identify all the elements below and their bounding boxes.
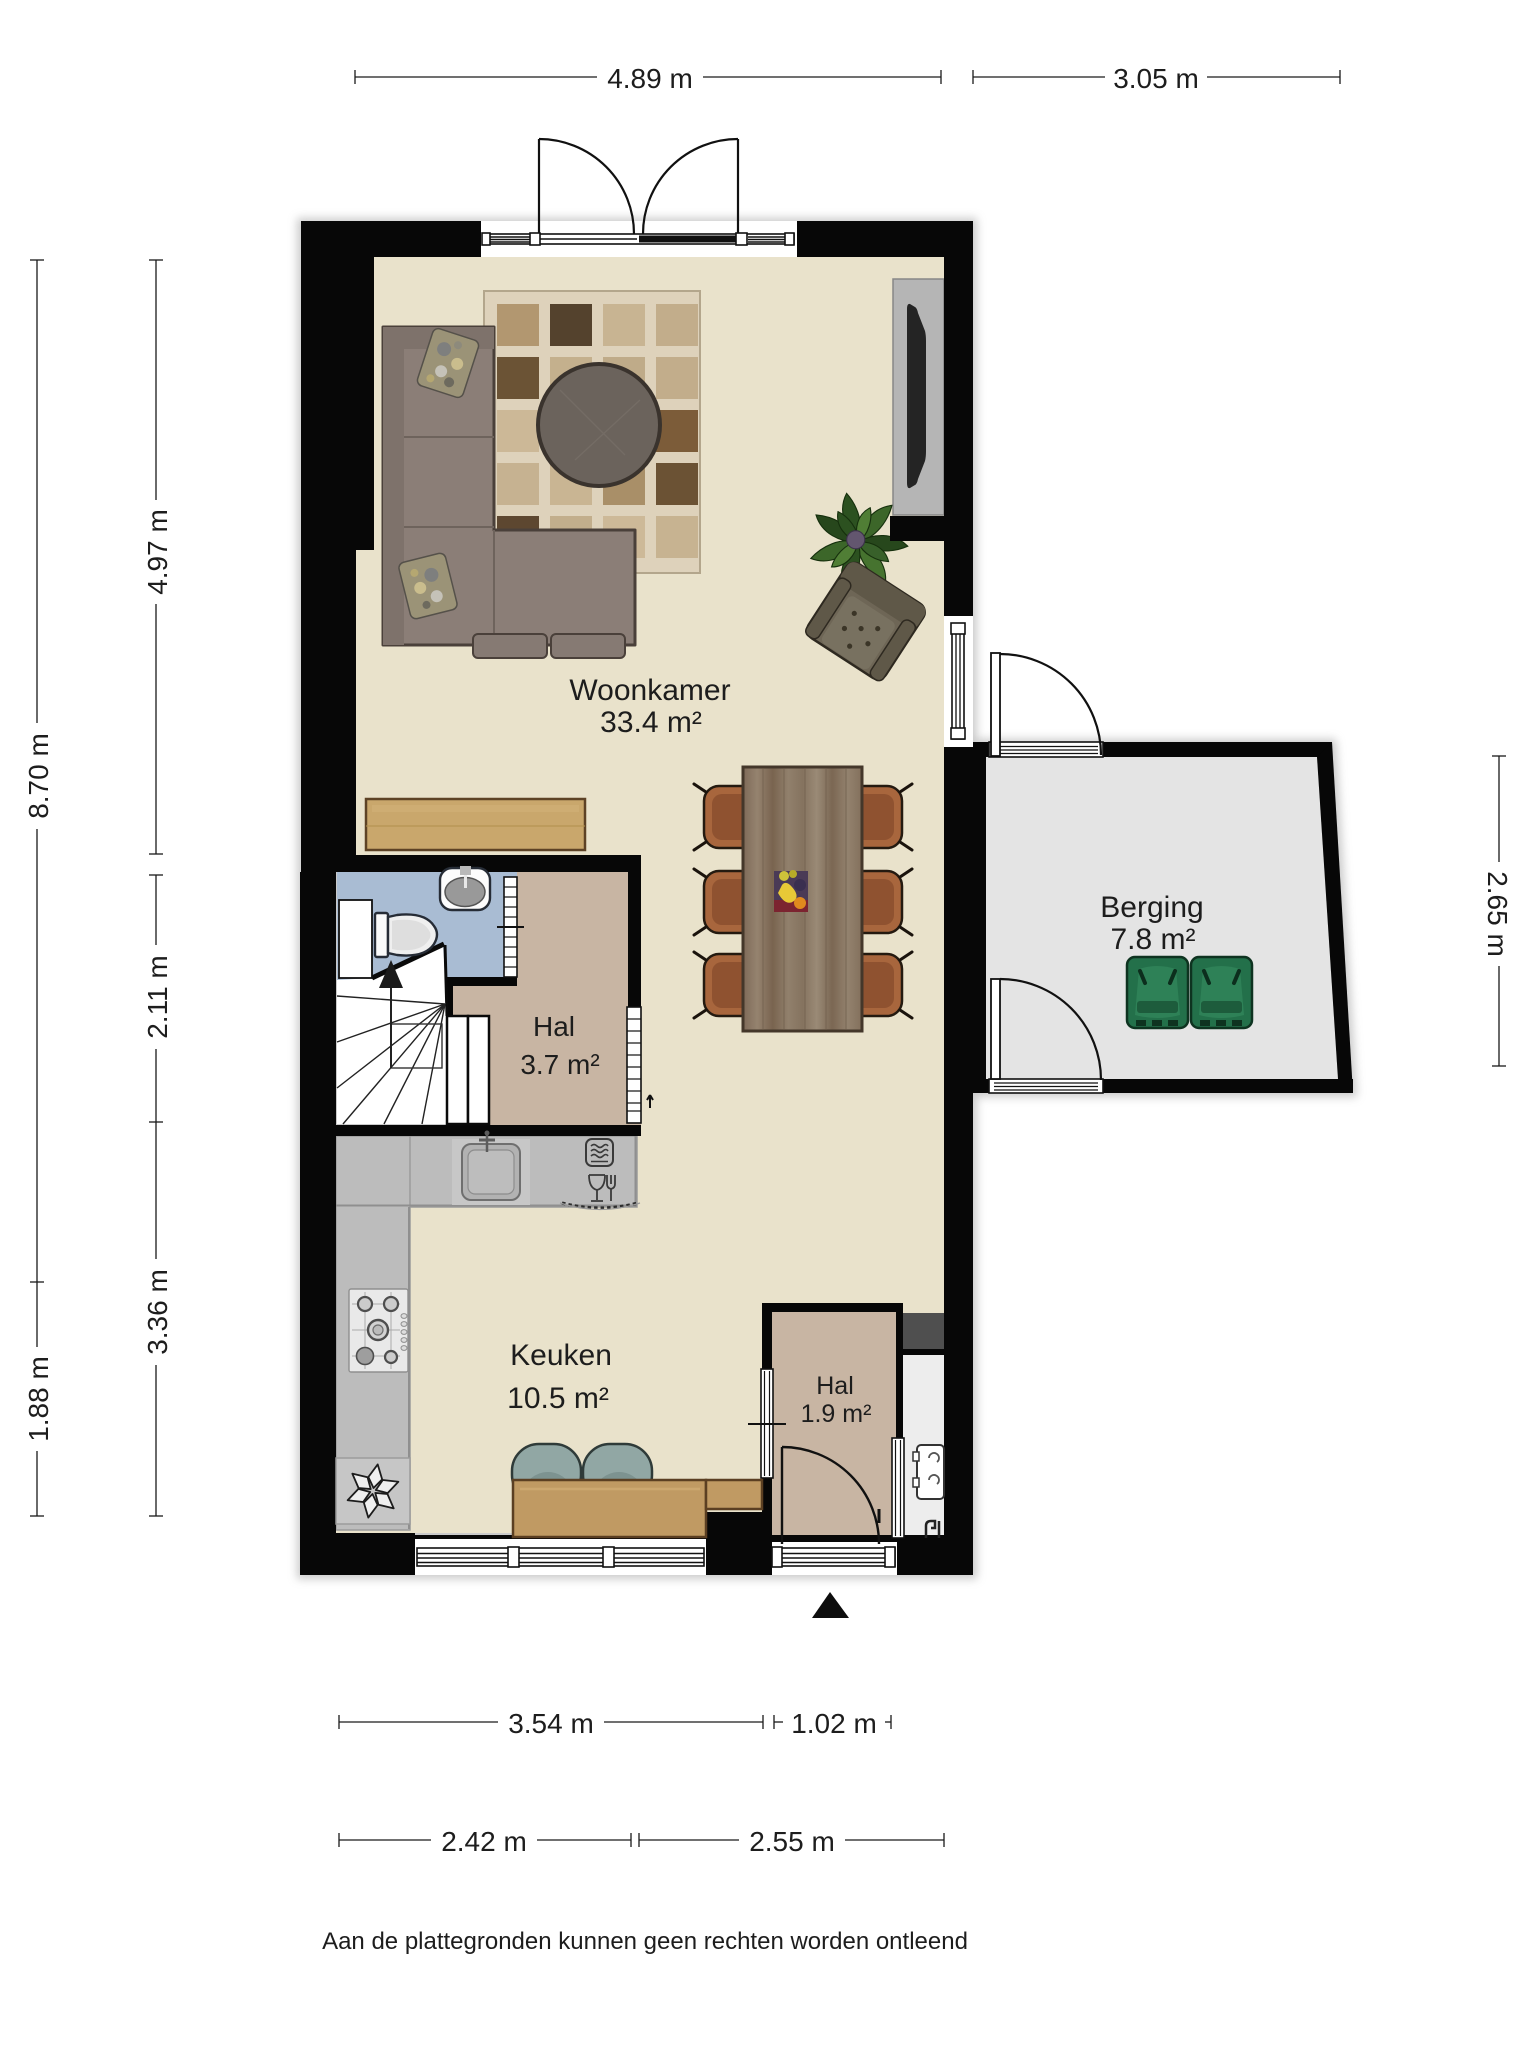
svg-text:Woonkamer: Woonkamer [569, 674, 730, 707]
svg-text:Keuken: Keuken [510, 1339, 612, 1372]
svg-text:10.5 m²: 10.5 m² [507, 1382, 609, 1415]
svg-text:3.54 m: 3.54 m [508, 1708, 594, 1739]
svg-text:Aan de plattegronden kunnen ge: Aan de plattegronden kunnen geen rechten… [322, 1928, 968, 1955]
svg-text:7.8 m²: 7.8 m² [1110, 923, 1195, 956]
svg-text:4.89 m: 4.89 m [607, 63, 693, 94]
svg-text:1.9 m²: 1.9 m² [801, 1400, 872, 1428]
svg-text:3.05 m: 3.05 m [1113, 63, 1199, 94]
svg-text:33.4 m²: 33.4 m² [600, 706, 702, 739]
svg-text:3.7 m²: 3.7 m² [520, 1049, 599, 1080]
svg-text:2.55 m: 2.55 m [749, 1826, 835, 1857]
svg-text:8.70 m: 8.70 m [23, 733, 54, 819]
svg-text:3.36 m: 3.36 m [142, 1269, 173, 1355]
svg-text:4.97 m: 4.97 m [142, 509, 173, 595]
svg-text:1.02 m: 1.02 m [791, 1708, 877, 1739]
svg-text:2.65 m: 2.65 m [1482, 871, 1513, 957]
svg-text:2.42 m: 2.42 m [441, 1826, 527, 1857]
svg-text:1.88 m: 1.88 m [23, 1356, 54, 1442]
svg-text:Hal: Hal [533, 1011, 575, 1042]
svg-text:Berging: Berging [1100, 891, 1203, 924]
svg-text:Hal: Hal [816, 1372, 854, 1400]
svg-text:2.11 m: 2.11 m [142, 955, 173, 1039]
